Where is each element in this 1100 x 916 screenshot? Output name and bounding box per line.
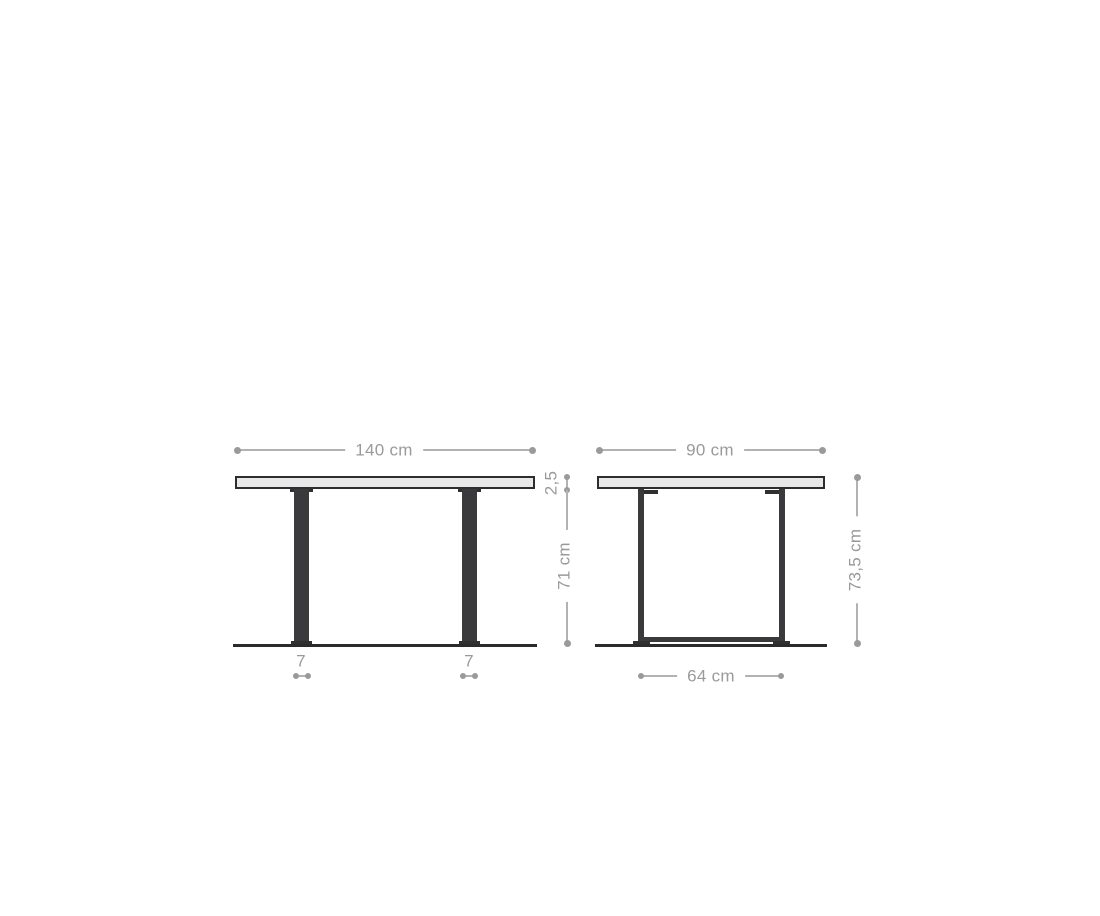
- dimension-dot: [564, 474, 570, 480]
- ground-line-side: [595, 644, 827, 647]
- side-height-label: 73,5 cm: [845, 517, 866, 604]
- front-width-label: 140 cm: [345, 440, 423, 461]
- dimension-dot: [234, 447, 241, 454]
- dimension-dot: [638, 673, 644, 679]
- front-leg-height-label: 71 cm: [554, 530, 575, 602]
- tabletop-side: [597, 476, 825, 489]
- skid-leg-right-side: [779, 489, 785, 642]
- dimension-dot: [293, 673, 299, 679]
- dimension-dot: [819, 447, 826, 454]
- dimension-dot: [305, 673, 311, 679]
- leg-width-left-label: 7: [296, 653, 306, 670]
- front-thickness-label: 2,5: [543, 471, 560, 496]
- dimension-dot: [564, 640, 571, 647]
- dimension-dot: [472, 673, 478, 679]
- tabletop-front: [235, 476, 535, 489]
- dimension-dot: [529, 447, 536, 454]
- dimension-dot: [778, 673, 784, 679]
- side-depth-label: 90 cm: [676, 440, 744, 461]
- skid-leg-left-side: [638, 489, 644, 642]
- dimension-dot: [854, 474, 861, 481]
- dimension-dot: [460, 673, 466, 679]
- table-leg-right-front: [462, 489, 477, 646]
- side-base-label: 64 cm: [677, 666, 745, 687]
- table-leg-left-front: [294, 489, 309, 646]
- dimension-dot: [854, 640, 861, 647]
- dimension-dot: [596, 447, 603, 454]
- dimension-diagram: 140 cm 2,5 71 cm 7 7: [0, 0, 1100, 916]
- ground-line-front: [233, 644, 537, 647]
- leg-width-right-label: 7: [464, 653, 474, 670]
- skid-bottom-bar: [638, 637, 785, 642]
